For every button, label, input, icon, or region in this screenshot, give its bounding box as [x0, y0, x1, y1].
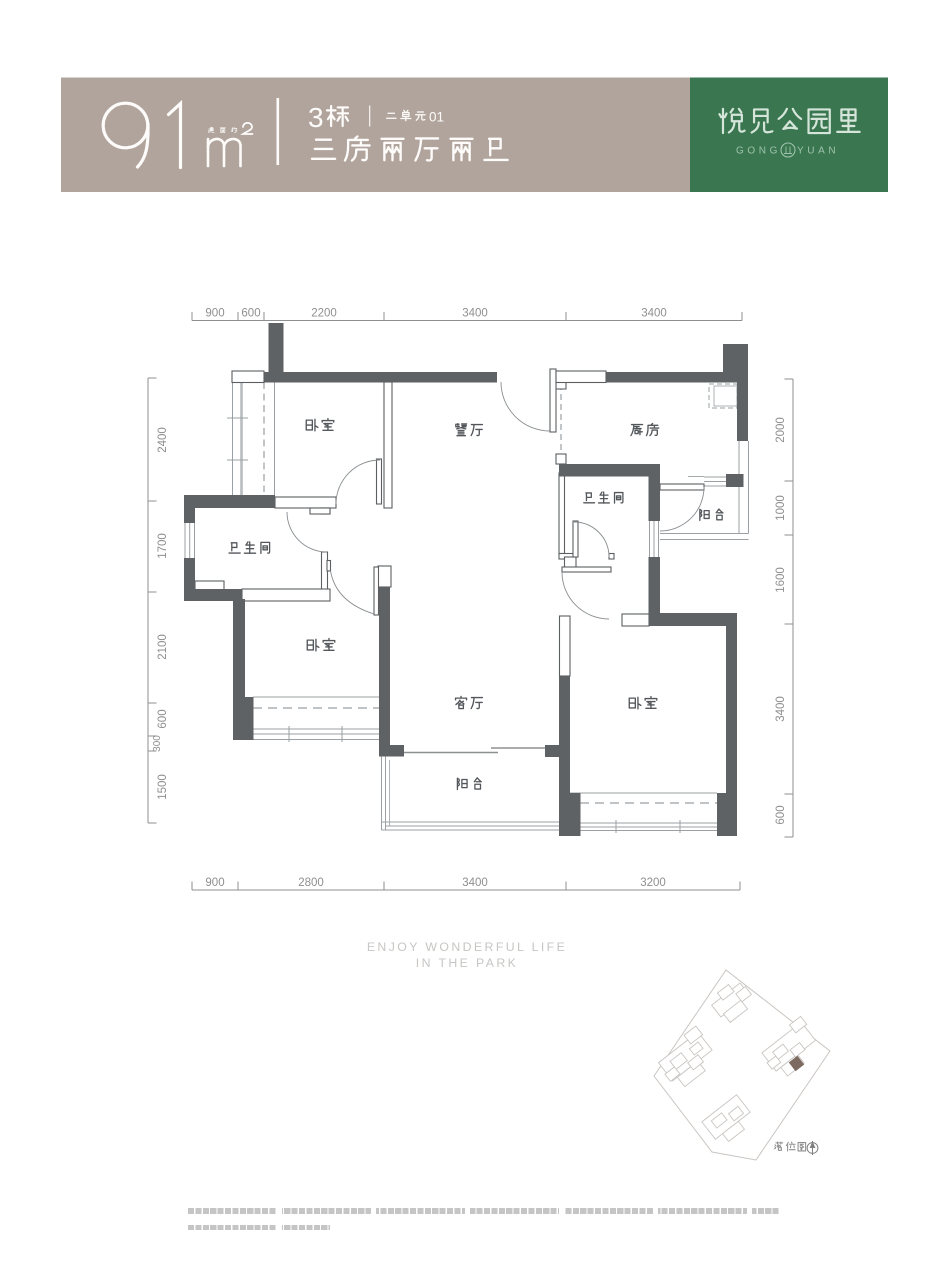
svg-text:3400: 3400 — [462, 308, 488, 320]
svg-text:GONG: GONG — [736, 146, 781, 157]
svg-text:900: 900 — [205, 877, 224, 889]
svg-text:IN THE PARK: IN THE PARK — [416, 956, 518, 970]
svg-text:900: 900 — [205, 308, 224, 320]
svg-text:2200: 2200 — [311, 308, 337, 320]
svg-text:3400: 3400 — [462, 877, 488, 889]
svg-text:1500: 1500 — [157, 774, 169, 800]
svg-text:600: 600 — [157, 709, 169, 728]
svg-text:2800: 2800 — [298, 877, 324, 889]
svg-text:2000: 2000 — [775, 417, 787, 443]
svg-text:1600: 1600 — [775, 567, 787, 593]
svg-text:ENJOY WONDERFUL LIFE: ENJOY WONDERFUL LIFE — [367, 940, 567, 954]
svg-text:2400: 2400 — [157, 427, 169, 453]
svg-text:01: 01 — [429, 110, 444, 125]
svg-text:3400: 3400 — [641, 308, 667, 320]
svg-text:600: 600 — [775, 805, 787, 824]
svg-text:YUAN: YUAN — [797, 146, 839, 157]
svg-text:3200: 3200 — [640, 877, 666, 889]
svg-text:2100: 2100 — [157, 634, 169, 660]
svg-text:1000: 1000 — [775, 495, 787, 521]
svg-text:600: 600 — [241, 308, 260, 320]
svg-text:3: 3 — [308, 102, 324, 133]
svg-text:1700: 1700 — [157, 533, 169, 559]
svg-text:300: 300 — [152, 735, 163, 752]
svg-text:3400: 3400 — [775, 696, 787, 722]
